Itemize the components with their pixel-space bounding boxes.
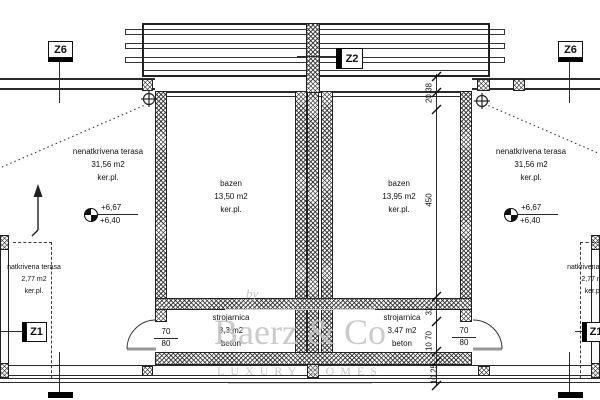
room-label-terrace-covered-left: natkrivena terasa 2,77 m2 ker.pl. <box>7 262 61 298</box>
section-line <box>569 62 570 103</box>
room-area: 2,77 m2 <box>7 274 61 286</box>
room-name: natkrivena terasa <box>567 262 600 274</box>
section-mark-bar <box>48 392 73 398</box>
room-name: strojarnica <box>384 311 421 324</box>
edge-pier <box>142 79 153 91</box>
edge-pier <box>477 79 490 91</box>
watermark-rule <box>225 309 375 310</box>
room-label-terrace-covered-right: natkrivena terasa 2,77 m2 ker.pl. <box>567 262 600 298</box>
room-finish: ker.pl. <box>382 203 415 216</box>
room-finish: ker.pl. <box>7 286 61 298</box>
section-line <box>569 352 570 393</box>
room-label-pool-right: bazen 13,95 m2 ker.pl. <box>382 177 415 216</box>
section-line <box>297 56 337 57</box>
section-mark-bar <box>558 392 583 398</box>
section-label-text: Z2 <box>346 53 359 65</box>
room-label-plant-right: strojarnica 3,47 m2 beton <box>384 311 421 350</box>
room-area: 3,47 m2 <box>384 324 421 337</box>
watermark-brand: Baerz & Co <box>214 311 386 353</box>
room-area: 2,77 m2 <box>567 274 600 286</box>
dim-top-offsets: 20,38 <box>425 83 434 103</box>
edge-pier <box>513 79 525 91</box>
room-name: bazen <box>382 177 415 190</box>
floor-plan-sheet: Z6 Z6 Z2 Z1 Z1 <box>0 0 600 400</box>
room-label-terrace-open-left: nenatkrivena terasa 31,56 m2 ker.pl. <box>73 145 143 184</box>
door-height-label: 80 <box>162 339 171 348</box>
room-finish: ker.pl. <box>496 171 566 184</box>
level-lower-left: +6,40 <box>100 216 120 225</box>
level-lower-right: +6,40 <box>520 216 540 225</box>
section-label-z1-right: Z1 <box>586 322 600 342</box>
dim-pool-length: 450 <box>425 193 434 206</box>
north-arrow-icon <box>32 184 43 236</box>
room-area: 31,56 m2 <box>73 158 143 171</box>
left-boundary-wall <box>0 235 9 378</box>
door-height-label: 80 <box>460 338 469 347</box>
watermark-tagline: LUXURY HOMES <box>217 364 383 379</box>
terrace-edge-line <box>0 88 155 90</box>
edge-pier <box>142 366 153 376</box>
level-upper-left: +6,67 <box>101 203 121 212</box>
terrace-edge-line <box>472 88 600 90</box>
room-name: bazen <box>214 177 247 190</box>
room-finish: beton <box>384 337 421 350</box>
pool-left-outer-wall <box>155 91 167 322</box>
watermark-prefix: by <box>246 286 258 302</box>
section-label-z1-left: Z1 <box>26 322 47 342</box>
dimension-line <box>436 74 437 386</box>
terrace-edge-line <box>472 78 600 80</box>
room-finish: ker.pl. <box>567 286 600 298</box>
section-label-z6-right: Z6 <box>558 41 583 58</box>
room-name: nenatkrivena terasa <box>496 145 566 158</box>
room-name: nenatkrivena terasa <box>73 145 143 158</box>
door-swing-right <box>473 320 502 349</box>
pool-right-outer-wall <box>460 91 472 322</box>
room-area: 31,56 m2 <box>496 158 566 171</box>
edge-pier <box>478 366 490 376</box>
room-finish: ker.pl. <box>73 171 143 184</box>
dim-edge-band: 10,25 <box>430 364 439 384</box>
dim-wall-section: 32 <box>425 307 434 316</box>
section-label-text: Z6 <box>564 44 577 56</box>
dim-door-opening: 10 70 <box>425 331 434 351</box>
left-boundary-pier <box>0 363 9 378</box>
watermark-rule <box>228 383 372 384</box>
section-label-text: Z1 <box>30 326 43 338</box>
section-line <box>59 352 60 393</box>
level-upper-right: +6,67 <box>521 203 541 212</box>
section-line <box>0 331 23 332</box>
section-label-z6-left: Z6 <box>48 41 73 58</box>
section-label-z2: Z2 <box>341 48 363 69</box>
section-line <box>59 62 60 103</box>
room-label-pool-left: bazen 13,50 m2 ker.pl. <box>214 177 247 216</box>
section-label-text: Z6 <box>54 44 67 56</box>
door-width-label: 70 <box>460 326 469 335</box>
party-wall-column <box>306 23 320 93</box>
door-width-label: 70 <box>162 327 171 336</box>
terrace-edge-line <box>0 78 155 80</box>
left-boundary-pier <box>0 235 9 250</box>
room-area: 13,50 m2 <box>214 190 247 203</box>
room-label-terrace-open-right: nenatkrivena terasa 31,56 m2 ker.pl. <box>496 145 566 184</box>
room-area: 13,95 m2 <box>382 190 415 203</box>
door-swing-left <box>127 320 156 349</box>
section-label-text: Z1 <box>590 326 600 338</box>
room-finish: ker.pl. <box>214 203 247 216</box>
level-fraction-line <box>98 214 138 215</box>
level-fraction-line <box>518 214 558 215</box>
room-name: natkrivena terasa <box>7 262 61 274</box>
